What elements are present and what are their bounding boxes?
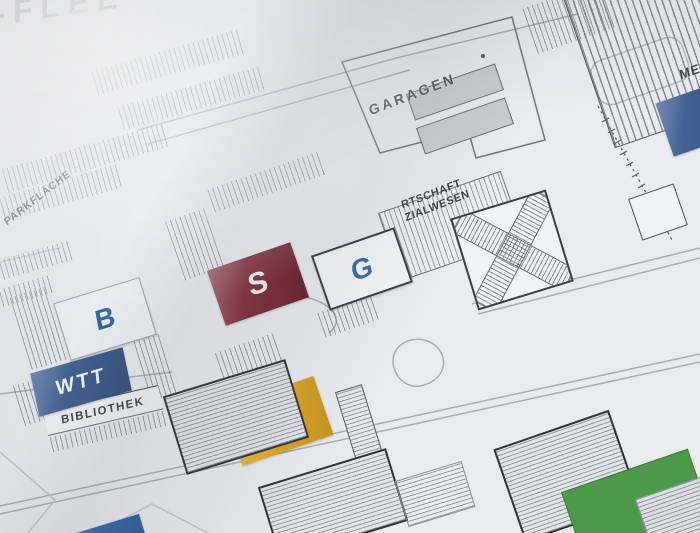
- building-wtt-label: WTT: [55, 365, 107, 400]
- building-g-label: G: [349, 252, 376, 287]
- building-b-upper-label: B: [93, 302, 118, 336]
- building-s-label: S: [245, 266, 271, 302]
- site-map: ME S W G B B BIBLIOTHEK WTT -: [0, 0, 700, 533]
- photo-of-campus-map: ME S W G B B BIBLIOTHEK WTT -: [0, 0, 700, 533]
